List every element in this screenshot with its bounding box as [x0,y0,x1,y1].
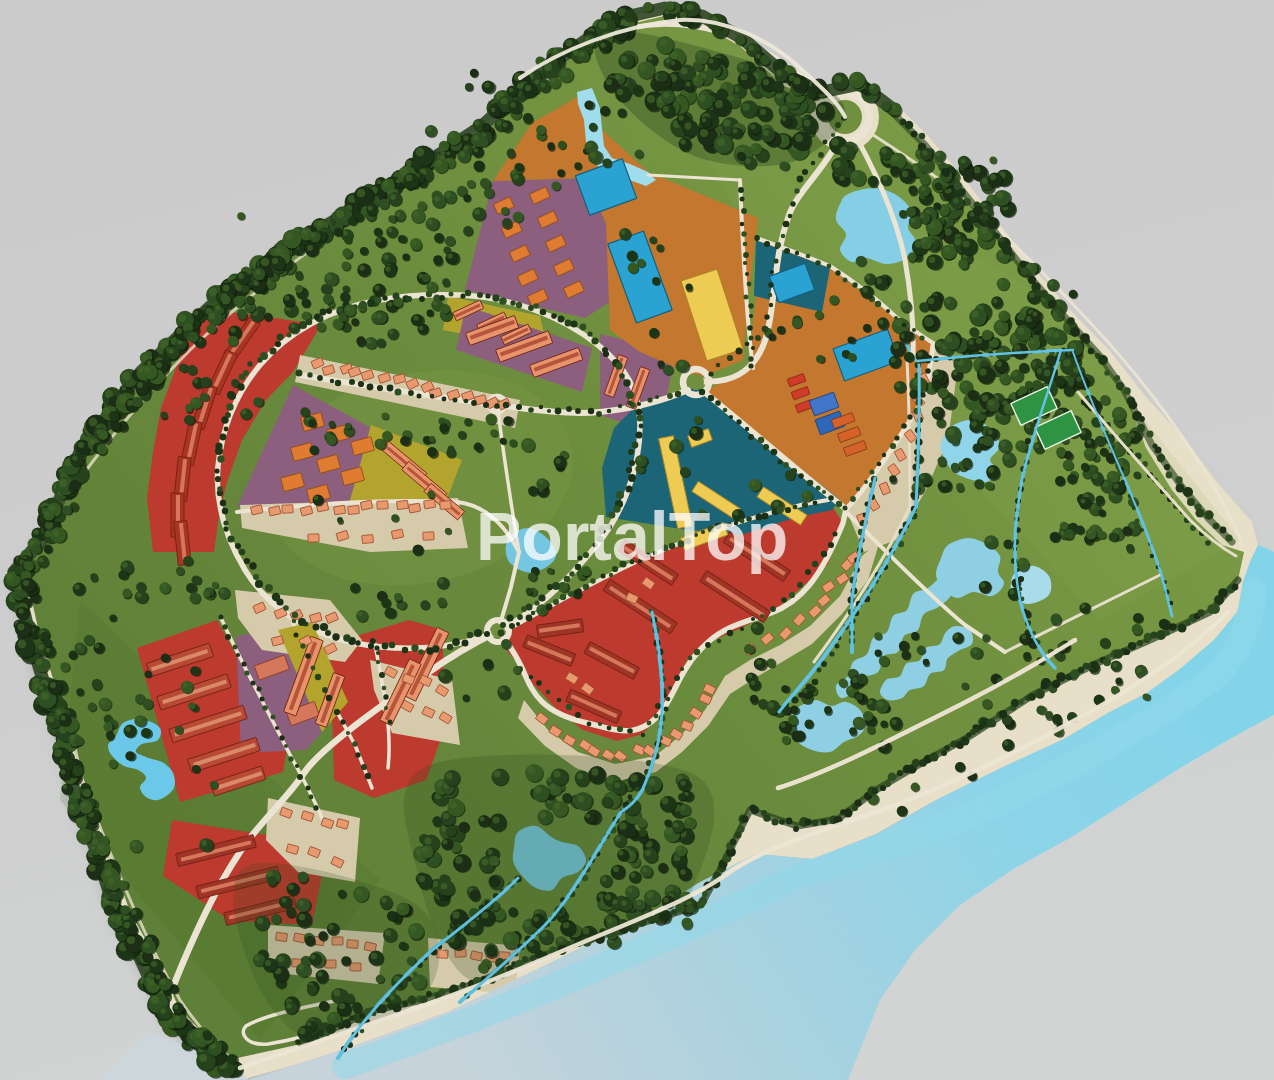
svg-text:PortalTop: PortalTop [476,498,788,574]
